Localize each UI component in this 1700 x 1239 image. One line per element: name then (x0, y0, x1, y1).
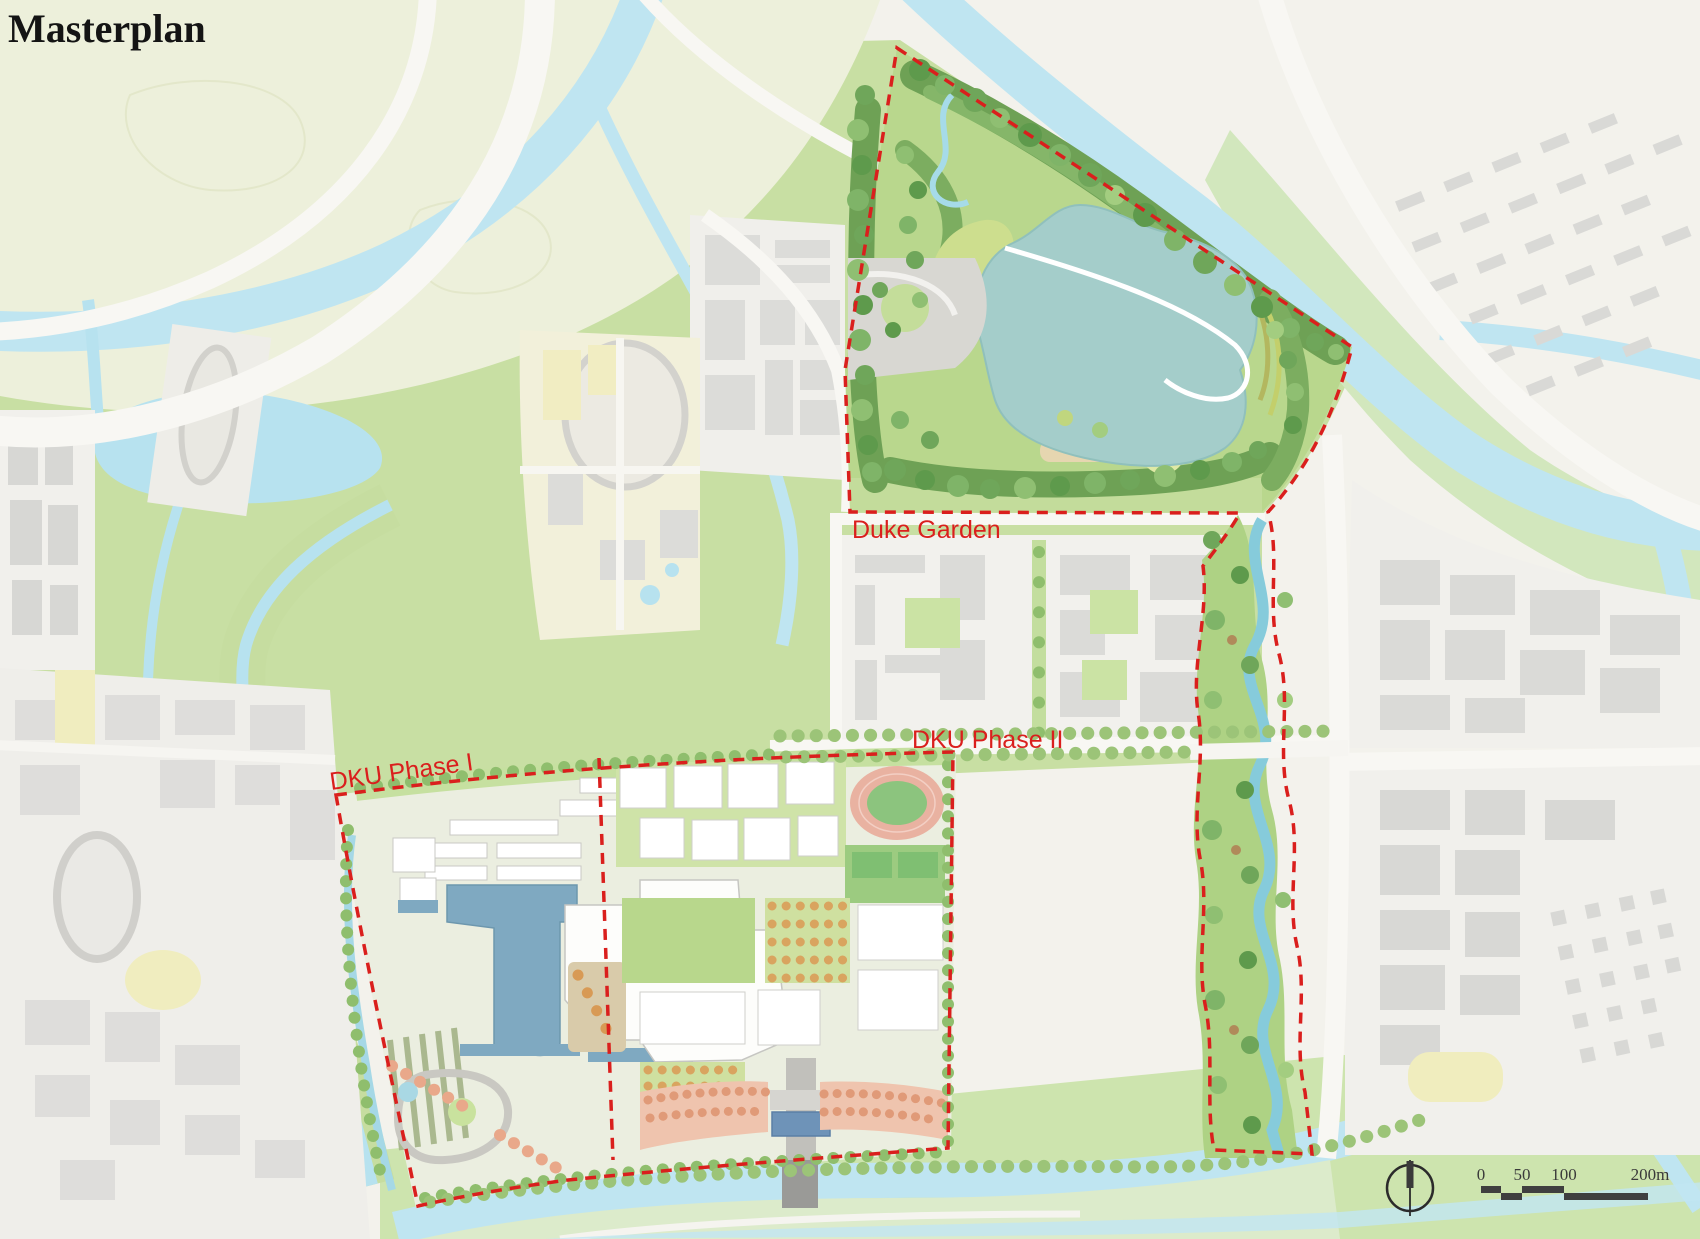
district-right-lower (1345, 765, 1700, 1155)
dku-campus (336, 753, 956, 1208)
district-left-bottom (0, 668, 370, 1239)
scale-tick-0: 0 (1477, 1165, 1486, 1184)
track-outline-left (57, 835, 137, 959)
district-school-yellow (520, 330, 700, 640)
stadium-track-outline (565, 343, 685, 487)
dku-phase-2-label: DKU Phase II (912, 726, 1063, 754)
scale-tick-200m: 200m (1631, 1165, 1670, 1184)
district-center-city (830, 535, 1240, 745)
scale-tick-100: 100 (1551, 1165, 1577, 1184)
page-title: Masterplan (8, 6, 206, 51)
scale-tick-50: 50 (1514, 1165, 1531, 1184)
duke-garden-label: Duke Garden (852, 516, 1001, 544)
yellow-field (125, 950, 201, 1010)
masterplan-map: Masterplan Duke Garden DKU Phase I DKU P… (0, 0, 1700, 1239)
track-field (867, 781, 927, 825)
